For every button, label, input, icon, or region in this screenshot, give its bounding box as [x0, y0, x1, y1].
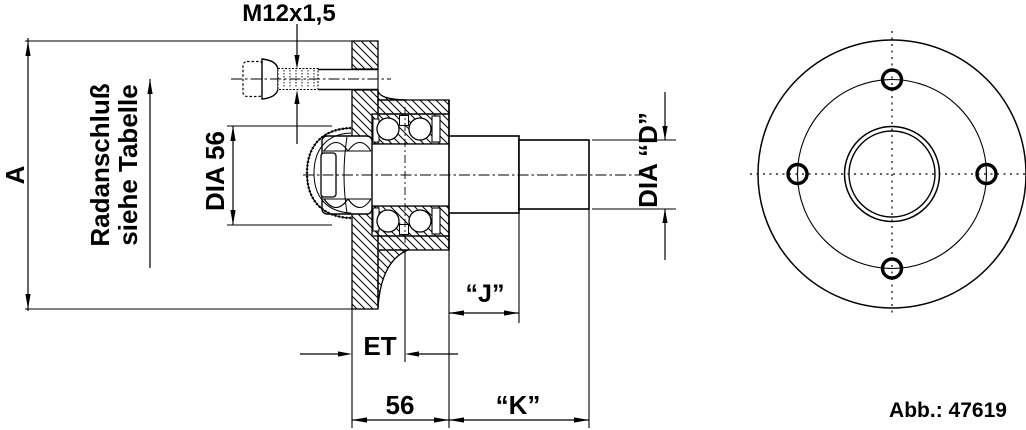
cage-top [400, 116, 409, 126]
seat-length-label: “J” [466, 280, 505, 308]
cap-diameter-label: DIA 56 [200, 131, 230, 211]
ball-bottom-right [409, 210, 431, 232]
ball-top-left [377, 118, 399, 140]
hub-width-label: 56 [386, 390, 415, 420]
ball-top-right [409, 118, 431, 140]
shaft-diameter-label: DIA “D” [633, 112, 663, 208]
seal-right-bottom [432, 208, 440, 234]
technical-drawing-wheel-hub: M12x1,5 Radanschluß siehe Tabelle A DIA … [0, 0, 1026, 430]
ball-bottom-left [377, 210, 399, 232]
background [0, 0, 1026, 430]
cage-bottom [400, 225, 409, 235]
shaft-length-label: “K” [496, 390, 541, 420]
seal-right-top [432, 116, 440, 142]
wheel-mount-label-line2: siehe Tabelle [113, 84, 143, 245]
flange-diameter-label: A [0, 165, 30, 184]
thread-size-label: M12x1,5 [242, 0, 335, 27]
offset-label: ET [363, 331, 396, 361]
wheel-mount-label-line1: Radanschluß [85, 83, 115, 246]
figure-number-label: Abb.: 47619 [889, 399, 1007, 422]
